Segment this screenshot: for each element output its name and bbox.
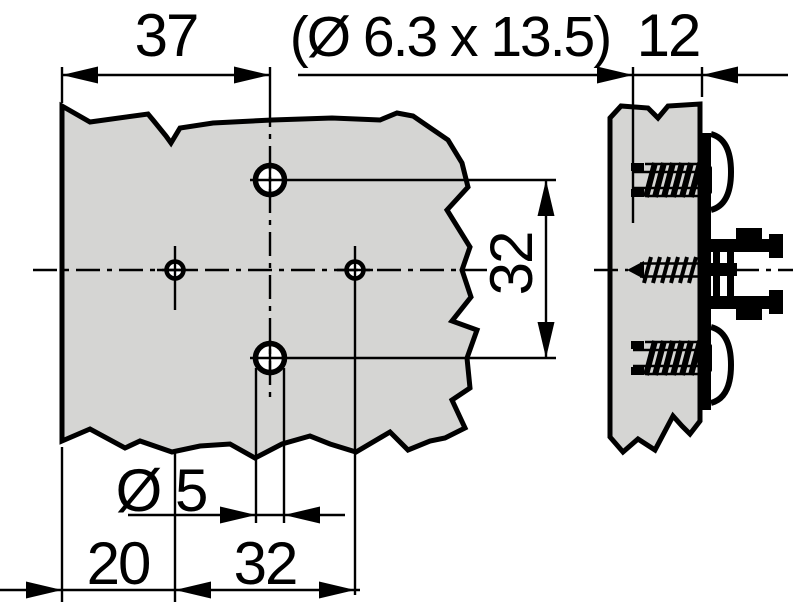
drawing-svg: 37 (Ø 6.3 x 13.5) 12 32 Ø 5 20 32	[0, 0, 793, 608]
dimension-37: 37	[62, 2, 270, 103]
dim-label-bottom-32: 32	[234, 530, 297, 597]
front-view	[33, 103, 497, 595]
dim-label-37: 37	[135, 2, 198, 69]
dim-label-12: 12	[637, 2, 700, 69]
dim-label-hole-diameter: Ø 5	[116, 457, 207, 524]
dim-label-20: 20	[87, 530, 150, 597]
mounting-plate-profile	[701, 133, 783, 410]
dim-label-vertical-32: 32	[478, 233, 545, 296]
technical-drawing-canvas: 37 (Ø 6.3 x 13.5) 12 32 Ø 5 20 32	[0, 0, 793, 608]
dim-label-screw-spec: (Ø 6.3 x 13.5)	[290, 5, 611, 69]
side-view	[594, 104, 793, 452]
